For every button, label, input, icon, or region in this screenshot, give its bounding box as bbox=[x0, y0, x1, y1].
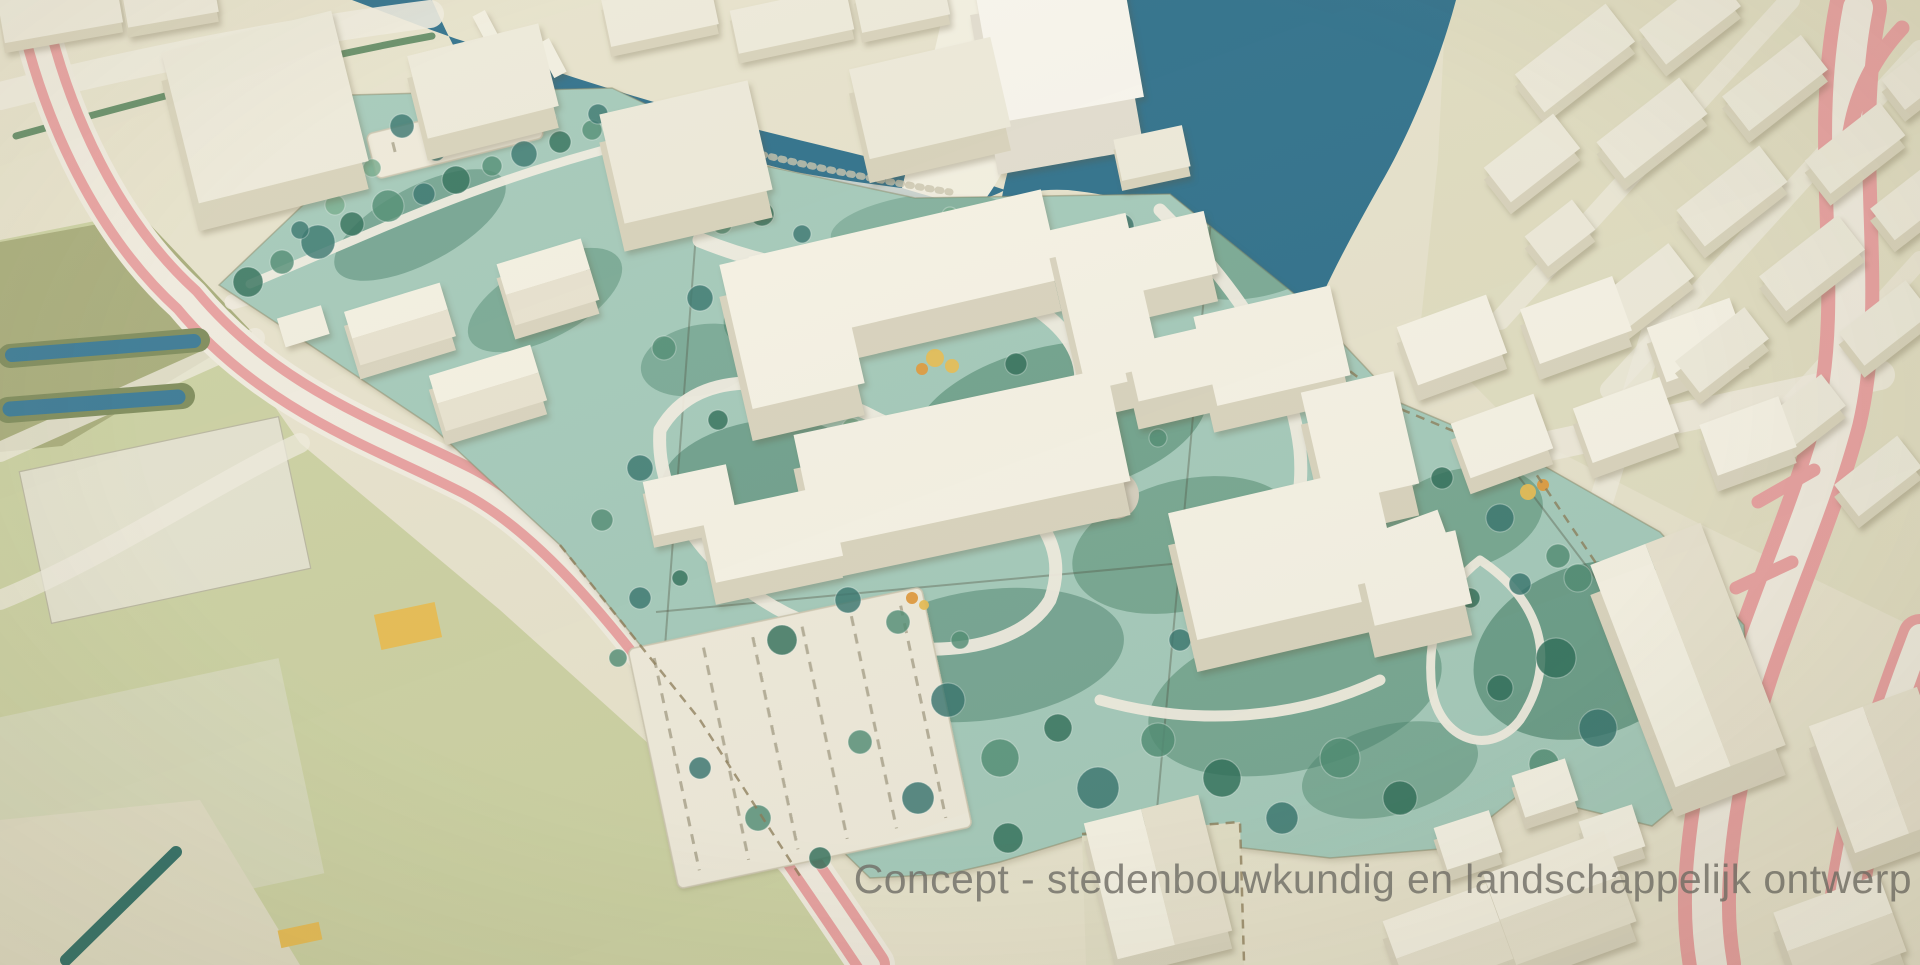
maquette-photo: Concept - stedenbouwkundig en landschapp… bbox=[0, 0, 1920, 965]
building-campus-b2-arm-s bbox=[1126, 327, 1219, 430]
model-scene bbox=[0, 0, 1920, 965]
caption-text: Concept - stedenbouwkundig en landschapp… bbox=[854, 856, 1912, 903]
building-campus-b5-arm-e bbox=[1358, 530, 1472, 658]
